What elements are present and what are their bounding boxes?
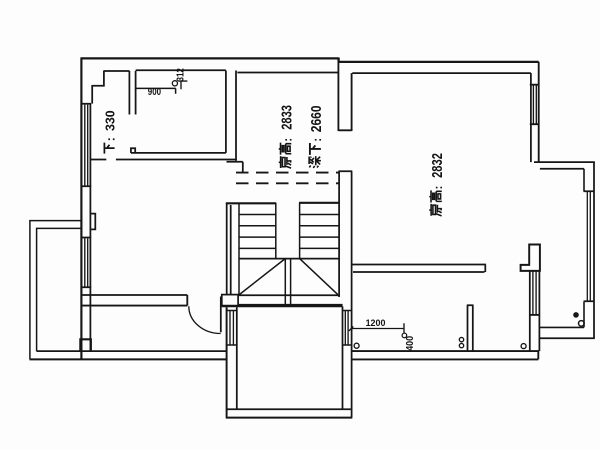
svg-text:330: 330	[102, 110, 117, 131]
svg-text:900: 900	[148, 86, 161, 97]
svg-text::: :	[104, 137, 118, 141]
svg-text::: :	[282, 138, 294, 142]
svg-text:2833: 2833	[278, 105, 295, 130]
svg-text::: :	[312, 138, 324, 142]
svg-text:2832: 2832	[428, 153, 445, 178]
svg-text::: :	[433, 186, 445, 190]
svg-text:2660: 2660	[308, 106, 324, 133]
svg-text:312: 312	[174, 68, 185, 81]
svg-text:1200: 1200	[366, 318, 386, 328]
svg-text:400: 400	[404, 336, 416, 351]
